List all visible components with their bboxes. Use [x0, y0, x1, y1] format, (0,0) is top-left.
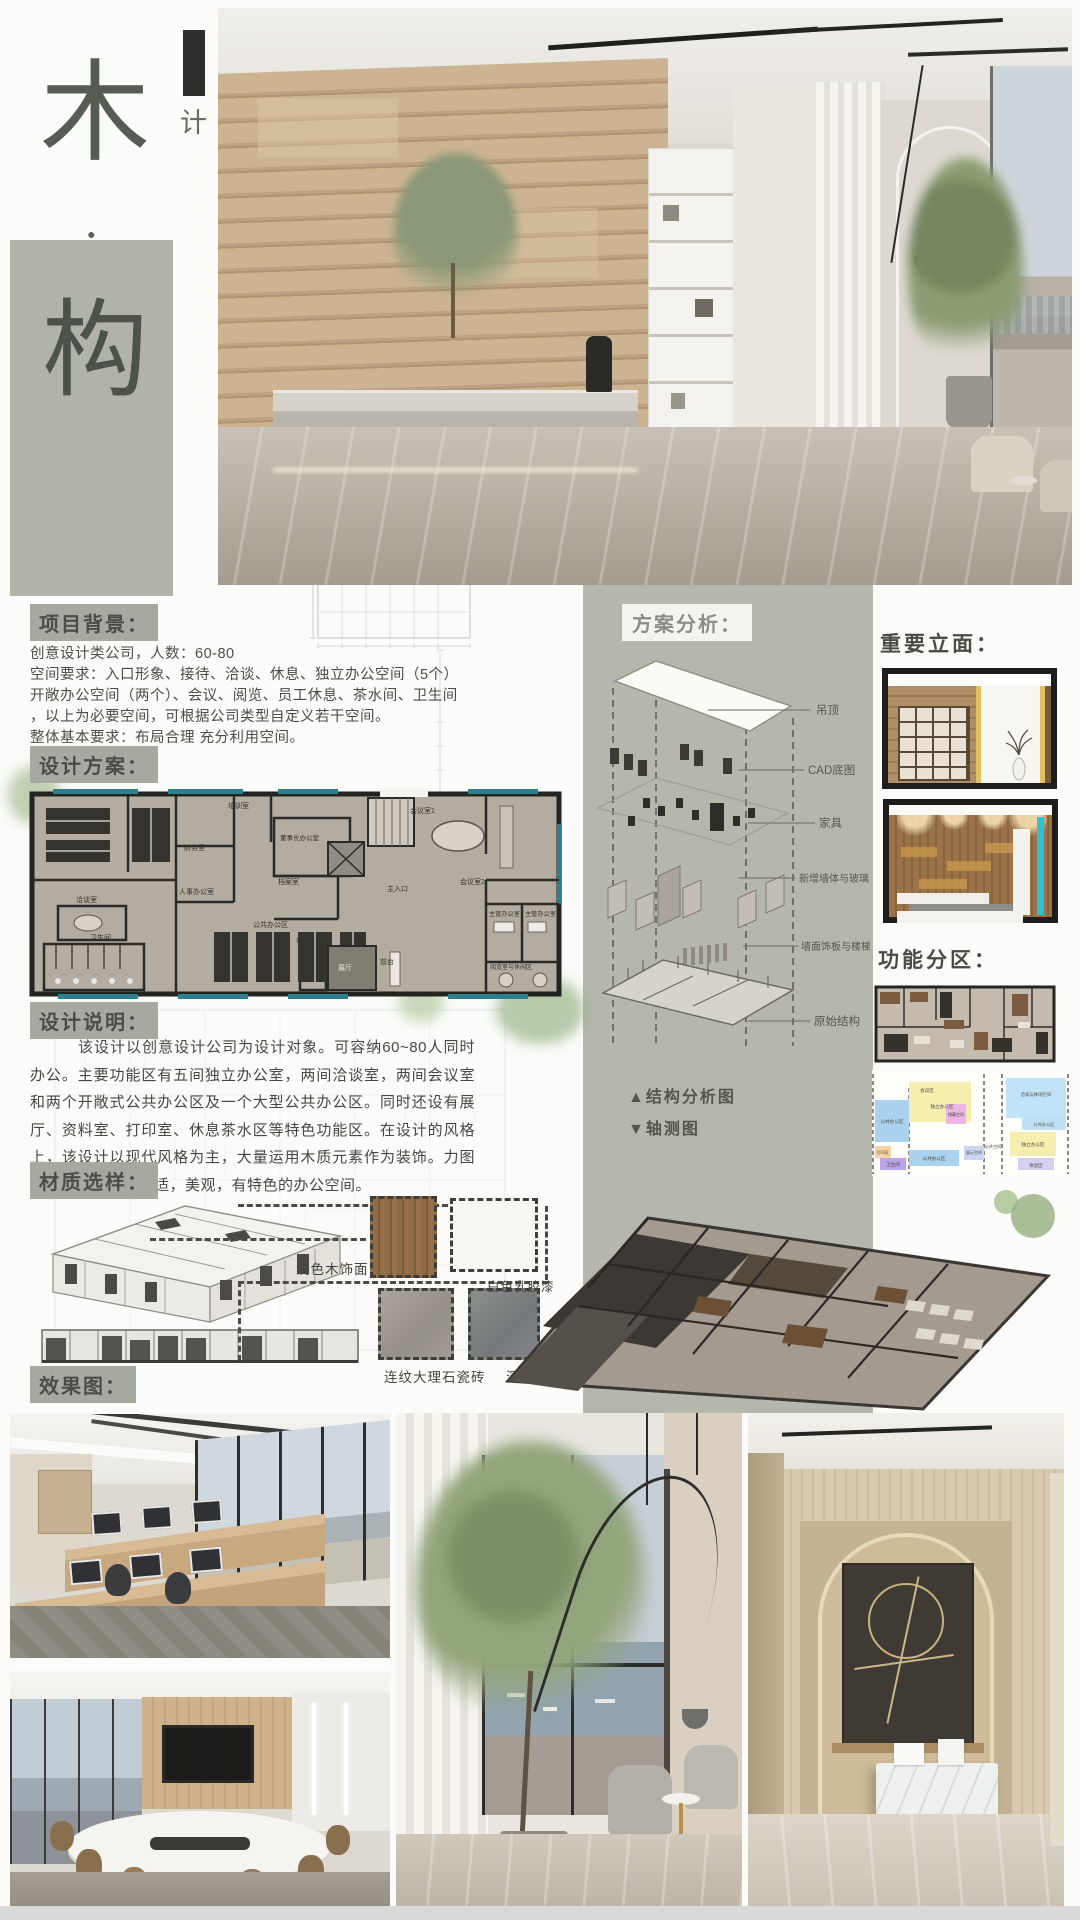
marble-veins	[748, 1814, 1064, 1906]
chair	[326, 1825, 350, 1855]
white-wall	[733, 86, 828, 471]
teal-accent-strip	[1037, 817, 1044, 915]
room-label: 董事长办公室	[280, 833, 320, 842]
room-label: 主管办公室	[489, 910, 520, 918]
shelf-item	[671, 393, 685, 409]
zone-label: 洽谈与休闲空间	[1021, 1091, 1052, 1098]
monitor	[189, 1547, 223, 1574]
room-label: 会议室2	[460, 877, 485, 886]
office-chair	[105, 1564, 131, 1596]
wood-patch	[919, 879, 967, 889]
room-label: 主入口	[387, 884, 408, 893]
vase-plant	[1004, 729, 1034, 781]
table-console	[150, 1837, 250, 1850]
zone-label: 公共空间	[985, 1143, 1002, 1150]
wall-shadow-band	[748, 1453, 784, 1846]
section-heading-analysis: 方案分析：	[622, 604, 752, 641]
photo-lounge-tree	[396, 1413, 742, 1906]
desk-box	[894, 1743, 924, 1765]
marble-floor	[748, 1814, 1064, 1906]
material-label-wood: 浅色木饰面	[296, 1258, 369, 1278]
zone-label: 公共办公区	[923, 1155, 946, 1162]
section-heading-renderings: 效果图：	[30, 1366, 136, 1403]
photo-reception-arch	[748, 1413, 1064, 1906]
monitor	[129, 1553, 163, 1580]
monitor	[141, 1505, 173, 1530]
photo-meeting-room	[10, 1671, 390, 1906]
title-char-gou: 构	[42, 298, 148, 404]
caption-structure-analysis: ▲结构分析图	[628, 1083, 736, 1107]
zone-label: 会议区	[920, 1087, 934, 1094]
ceiling	[748, 1413, 1064, 1469]
wood-highlight	[258, 98, 398, 158]
section-heading-zoning: 功能分区：	[878, 944, 998, 974]
office-chair	[165, 1572, 191, 1604]
room-label: 主管办公室	[525, 910, 556, 918]
table-stem	[679, 1803, 683, 1837]
gold-trim	[976, 686, 981, 783]
counter-light-strip	[273, 468, 638, 472]
room-label: 前台	[380, 957, 394, 966]
dashed-connector	[150, 1238, 366, 1241]
monitor	[69, 1559, 103, 1586]
white-wall	[292, 1693, 390, 1831]
materials-elevation-strip	[40, 1326, 360, 1366]
marble-veins	[218, 427, 1072, 585]
presentation-board: 木 · 构 设计类公司现代风办公空间设计	[0, 0, 1080, 1920]
monitor	[91, 1511, 123, 1536]
zone-label: 打印区	[877, 1149, 889, 1155]
room-label: 人事办公室	[179, 887, 214, 896]
zone-label: 公共办公区	[1034, 1121, 1055, 1128]
grid-shelf	[898, 706, 970, 781]
zone-label: 独立办公区	[931, 1103, 954, 1110]
room-label: 卫生间	[90, 933, 111, 942]
caption-axonometric: ▼轴测图	[628, 1115, 700, 1139]
elevation-drawing-2	[883, 799, 1058, 923]
axonometric-3d-render	[488, 1176, 1064, 1412]
marble-floor	[396, 1834, 742, 1906]
desk-box	[938, 1739, 964, 1765]
desk-front	[897, 911, 1023, 923]
zone-label: 卫生间	[886, 1161, 900, 1168]
room-label: 展厅	[338, 964, 352, 972]
zone-label: 展示空间	[966, 1149, 982, 1155]
shelf-unit	[648, 148, 735, 435]
zoning-mini-plan	[874, 982, 1056, 1066]
axon-label-cad-plan: CAD底图	[808, 763, 855, 777]
text-line: 创意设计类公司，人数：60-80	[30, 644, 520, 665]
marble-floor	[218, 427, 1072, 585]
shelf-item	[663, 205, 679, 221]
light-strip	[312, 1703, 316, 1815]
monitor	[191, 1499, 223, 1524]
zone-label: 公共办公区	[881, 1118, 904, 1125]
text-line: 开敞办公空间（两个）、会议、阅览、员工休息、茶水间、卫生间	[30, 686, 520, 707]
room-label: 公共办公区	[253, 920, 288, 929]
dashed-connector	[238, 1281, 241, 1361]
section-heading-design-plan: 设计方案：	[30, 746, 158, 783]
photo-open-office	[10, 1414, 390, 1658]
plant-trunk	[451, 263, 455, 338]
wall-edge-light	[1050, 1473, 1064, 1846]
plant-pot	[946, 376, 992, 428]
room-label: 阅览室与休闲区	[490, 963, 532, 971]
room-label: 会议室1	[410, 806, 435, 815]
bottom-bar	[0, 1906, 1080, 1920]
section-heading-elevations: 重要立面：	[880, 628, 1000, 658]
room-label: 茶水间	[296, 937, 314, 945]
floor	[10, 1872, 390, 1906]
shelf-item	[695, 299, 713, 317]
subtitle-accent-bar	[183, 30, 205, 96]
artwork-circle	[868, 1583, 944, 1659]
light-strip	[344, 1703, 348, 1815]
white-column	[1013, 829, 1030, 915]
wood-patch	[901, 847, 937, 857]
desk-step	[897, 893, 989, 904]
sculpture	[586, 336, 612, 392]
axon-label-wall-finish-stairs: 墙面饰板与楼梯	[801, 940, 870, 953]
wood-patch	[947, 861, 991, 871]
material-label-marble: 连纹大理石瓷砖	[384, 1366, 486, 1386]
artwork-dark-panel	[842, 1563, 974, 1749]
marble-veins	[396, 1834, 742, 1906]
elevation-drawing-1	[882, 668, 1057, 789]
room-label: 洽谈室	[76, 895, 97, 904]
room-label: 档案室	[278, 877, 299, 886]
wall-cabinet	[38, 1470, 92, 1534]
room-label: 培训室	[228, 801, 249, 810]
wood-edge	[1045, 686, 1051, 783]
side-table	[1011, 476, 1037, 485]
project-background-text: 创意设计类公司，人数：60-80 空间要求：入口形象、接待、洽谈、休息、独立办公…	[30, 644, 520, 749]
axon-label-original-structure: 原始结构	[814, 1014, 860, 1028]
zone-label: 休息区	[1029, 1162, 1043, 1169]
zone-label: 独立办公区	[1022, 1141, 1045, 1148]
text-line: ，以上为必要空间，可根据公司类型自定义若干空间。	[30, 707, 520, 728]
title-box: 构	[10, 240, 173, 596]
material-swatch-light-wood	[370, 1196, 437, 1278]
chair	[50, 1821, 74, 1851]
shelves	[649, 149, 734, 434]
tree	[908, 158, 1023, 383]
zone-label: 储藏空间	[948, 1111, 964, 1117]
section-heading-project-background: 项目背景：	[30, 604, 158, 641]
zoning-color-diagram: 公共办公区 会议区 独立办公区 储藏空间 打印区 卫生间 公共办公区 展示空间 …	[872, 1070, 1070, 1176]
desk-step-dark	[909, 904, 1021, 911]
pendant-rod	[696, 1413, 698, 1475]
text-line: 空间要求：入口形象、接待、洽谈、休息、独立办公空间（5个）	[30, 665, 520, 686]
hero-photo-reception-interior	[218, 8, 1072, 585]
material-swatch-marble-tile	[378, 1288, 454, 1360]
room-label: 财务室	[184, 843, 205, 852]
carpet-floor	[10, 1606, 390, 1658]
axon-label-ceiling: 吊顶	[816, 704, 839, 717]
lounge-chair	[1040, 460, 1072, 512]
curtain	[816, 82, 886, 474]
axon-label-furniture: 家具	[819, 816, 842, 830]
wall-tv	[162, 1725, 254, 1783]
axon-label-new-walls-glass: 新增墙体与玻璃	[799, 872, 869, 885]
ceiling-strip	[889, 805, 1052, 815]
shelf-grid-lines	[900, 708, 968, 779]
title-char-wood: 木	[40, 58, 150, 168]
exploded-axon-diagram: 吊顶 CAD底图 家具 新增墙体与玻璃 墙面饰板与楼梯 原始结构	[588, 648, 870, 1056]
indoor-plant	[393, 153, 518, 318]
floor-plan-drawing: 培训室 财务室 人事办公室 董事长办公室 档案室 主入口 会议室1 会议室2 洽…	[28, 784, 565, 1006]
